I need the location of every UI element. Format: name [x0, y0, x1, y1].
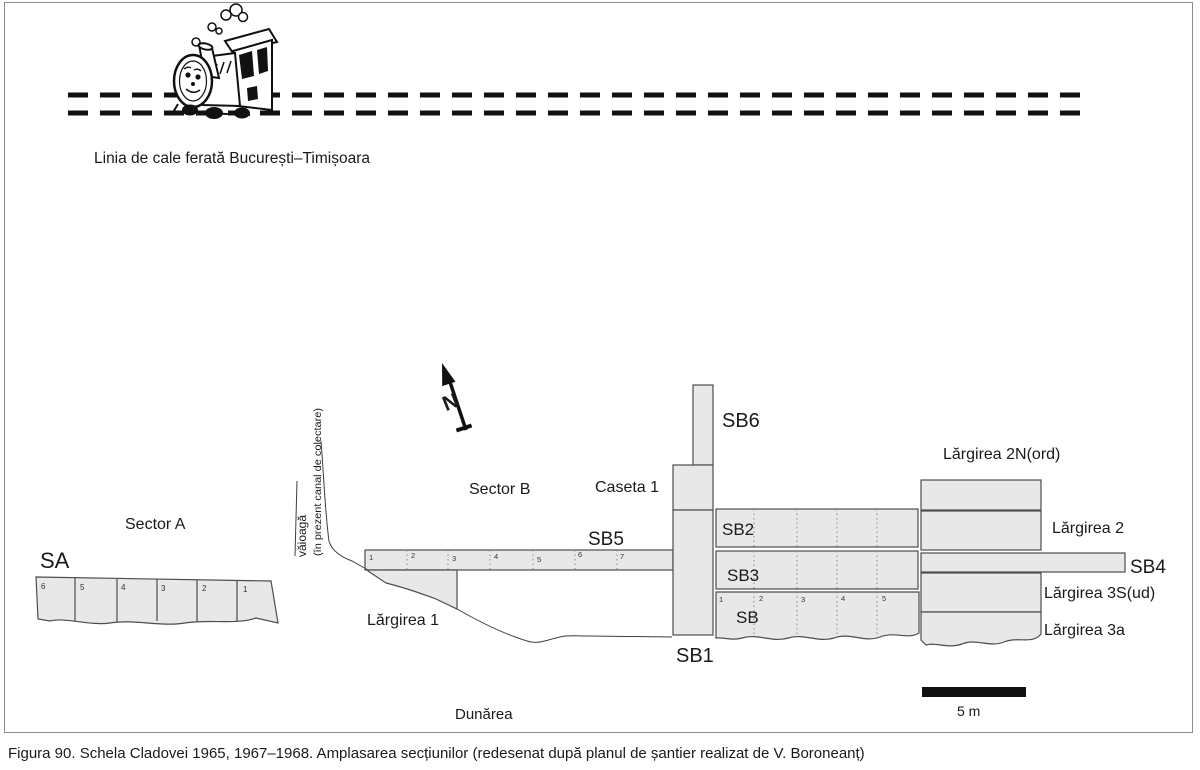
sb5-label: SB5 — [588, 529, 624, 550]
largirea2n-label: Lărgirea 2N(ord) — [943, 446, 1060, 463]
valley-label-line1: văioagă — [295, 515, 309, 557]
sector-b-label: Sector B — [469, 481, 530, 498]
section-sb4 — [921, 553, 1125, 572]
river-label: Dunărea — [455, 706, 513, 723]
sb3-label: SB3 — [727, 566, 759, 585]
scale-label: 5 m — [957, 703, 980, 719]
sb-cell: 3 — [801, 595, 805, 604]
largirea1-label: Lărgirea 1 — [367, 612, 439, 629]
sa-cell: 6 — [41, 582, 46, 591]
sb5-cell: 4 — [494, 552, 498, 561]
sb-label: SB — [736, 608, 759, 627]
sa-cell: 4 — [121, 583, 126, 592]
site-plan-figure: Linia de cale ferată București–Timișoara… — [0, 0, 1200, 738]
sb2-label: SB2 — [722, 520, 754, 539]
largirea3s-label: Lărgirea 3S(ud) — [1044, 585, 1155, 602]
section-sb1 — [673, 510, 713, 635]
scale-bar-rect — [922, 687, 1026, 697]
sb4-label: SB4 — [1130, 557, 1166, 578]
train-panel — [247, 86, 258, 101]
caseta1-label: Caseta 1 — [595, 479, 659, 496]
sb5-cell: 7 — [620, 552, 624, 561]
largirea3a-label: Lărgirea 3a — [1044, 622, 1125, 639]
sb5-cell: 3 — [452, 554, 456, 563]
sa-cell: 3 — [161, 584, 166, 593]
sb-cell: 1 — [719, 595, 723, 604]
sb5-cell: 6 — [578, 550, 582, 559]
section-caseta1 — [673, 465, 713, 510]
railway-label: Linia de cale ferată București–Timișoara — [94, 150, 370, 167]
section-largirea2n — [921, 480, 1041, 510]
sb-cell: 2 — [759, 594, 763, 603]
section-largirea3s — [921, 573, 1041, 612]
sb-cell: 4 — [841, 594, 845, 603]
valley-label-line2: (în prezent canal de colectare) — [313, 408, 324, 556]
sb5-cell: 2 — [411, 551, 415, 560]
sector-a-label: Sector A — [125, 516, 186, 533]
figure-caption: Figura 90. Schela Cladovei 1965, 1967–19… — [8, 745, 865, 762]
sa-cell: 2 — [202, 584, 207, 593]
sb-cell: 5 — [882, 594, 886, 603]
section-largirea2 — [921, 511, 1041, 550]
sb5-cell: 1 — [369, 553, 373, 562]
largirea2-label: Lărgirea 2 — [1052, 520, 1124, 537]
sb5-cell: 5 — [537, 555, 541, 564]
sb6-label: SB6 — [722, 410, 760, 432]
sa-cell: 5 — [80, 583, 85, 592]
train-boiler-face-inner — [180, 61, 207, 101]
sa-cell: 1 — [243, 585, 248, 594]
section-sb6 — [693, 385, 713, 465]
sa-label: SA — [40, 548, 70, 573]
sb1-label: SB1 — [676, 645, 714, 667]
